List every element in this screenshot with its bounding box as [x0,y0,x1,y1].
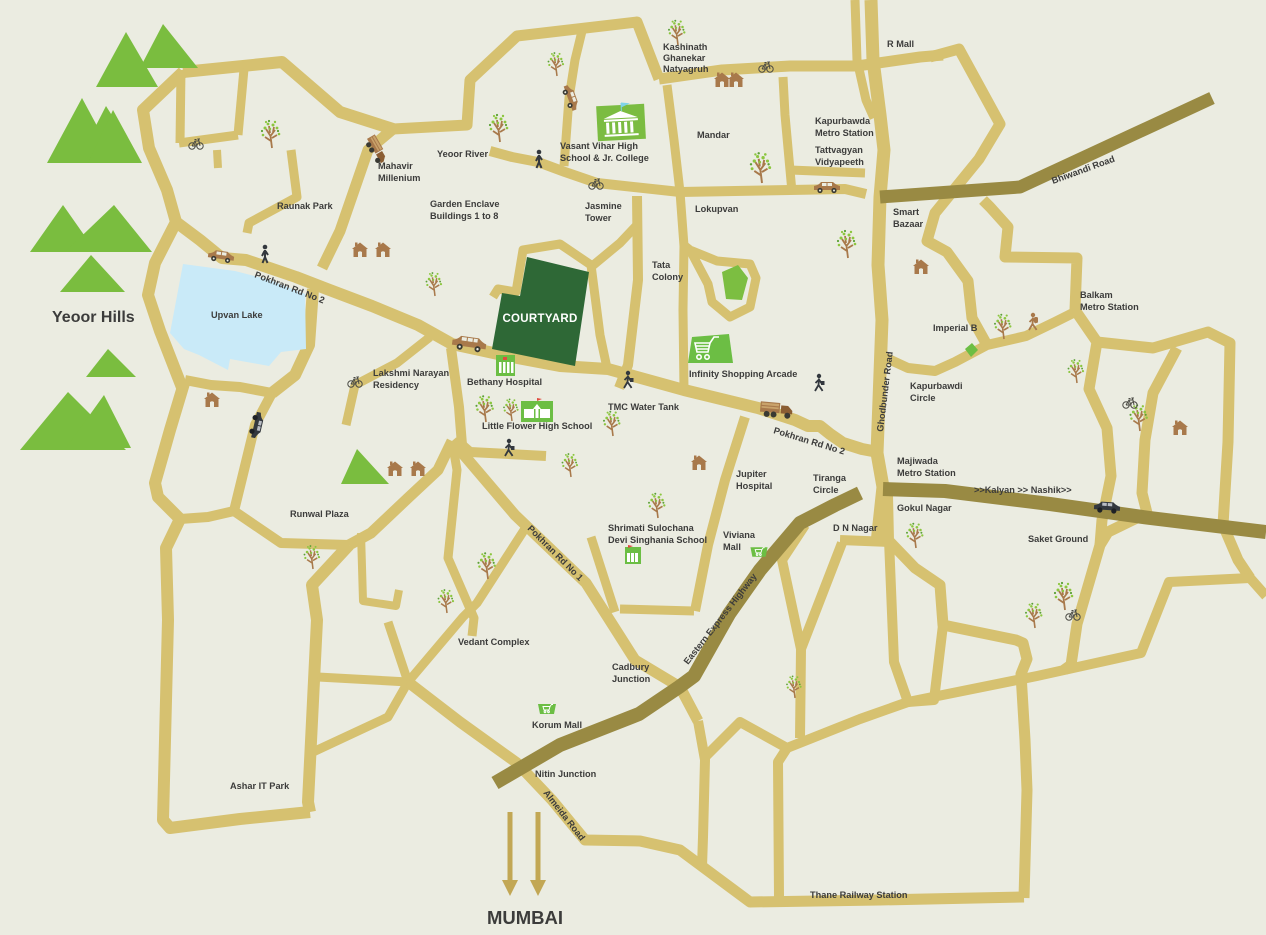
svg-text:Mandar: Mandar [697,130,730,140]
svg-text:School & Jr. College: School & Jr. College [560,153,649,163]
svg-text:Vasant Vihar High: Vasant Vihar High [560,141,638,151]
svg-text:Vidyapeeth: Vidyapeeth [815,157,864,167]
svg-text:Millenium: Millenium [378,173,420,183]
svg-text:Bethany Hospital: Bethany Hospital [467,377,542,387]
svg-text:Circle: Circle [910,393,936,403]
svg-text:Bazaar: Bazaar [893,219,924,229]
svg-text:Upvan Lake: Upvan Lake [211,310,263,320]
svg-text:Garden Enclave: Garden Enclave [430,199,499,209]
svg-text:MUMBAI: MUMBAI [487,907,563,928]
svg-text:Devi Singhania School: Devi Singhania School [608,535,707,545]
svg-text:Jupiter: Jupiter [736,469,767,479]
svg-text:Runwal Plaza: Runwal Plaza [290,509,350,519]
svg-text:Kapurbawda: Kapurbawda [815,116,871,126]
svg-text:>>Kalyan >> Nashik>>: >>Kalyan >> Nashik>> [974,485,1072,495]
svg-text:Cadbury: Cadbury [612,662,650,672]
svg-text:Thane Railway Station: Thane Railway Station [810,890,908,900]
svg-text:Mall: Mall [723,542,741,552]
svg-text:Saket Ground: Saket Ground [1028,534,1088,544]
svg-text:Viviana: Viviana [723,530,756,540]
svg-text:Metro Station: Metro Station [1080,302,1139,312]
svg-text:Circle: Circle [813,485,839,495]
svg-text:Lakshmi Narayan: Lakshmi Narayan [373,368,449,378]
svg-text:Metro Station: Metro Station [815,128,874,138]
svg-text:Mahavir: Mahavir [378,161,413,171]
svg-text:Ghanekar: Ghanekar [663,53,706,63]
svg-text:Nitin Junction: Nitin Junction [535,769,597,779]
svg-text:Jasmine: Jasmine [585,201,622,211]
svg-text:Shrimati Sulochana: Shrimati Sulochana [608,523,695,533]
svg-text:Smart: Smart [893,207,919,217]
svg-text:D N Nagar: D N Nagar [833,523,878,533]
svg-text:Tattvagyan: Tattvagyan [815,145,863,155]
svg-text:Majiwada: Majiwada [897,456,939,466]
svg-text:Raunak Park: Raunak Park [277,201,334,211]
svg-text:Hospital: Hospital [736,481,772,491]
svg-text:Metro Station: Metro Station [897,468,956,478]
svg-text:Korum Mall: Korum Mall [532,720,582,730]
svg-text:Tata: Tata [652,260,671,270]
svg-text:Vedant Complex: Vedant Complex [458,637,530,647]
svg-text:Natyagruh: Natyagruh [663,64,709,74]
svg-text:Colony: Colony [652,272,684,282]
svg-text:Infinity Shopping Arcade: Infinity Shopping Arcade [689,369,797,379]
svg-text:Yeoor River: Yeoor River [437,149,488,159]
svg-text:TMC Water Tank: TMC Water Tank [608,402,680,412]
svg-text:Tower: Tower [585,213,612,223]
svg-text:COURTYARD: COURTYARD [502,313,577,325]
svg-text:Ashar IT Park: Ashar IT Park [230,781,290,791]
svg-text:R Mall: R Mall [887,39,914,49]
svg-text:Lokupvan: Lokupvan [695,204,739,214]
svg-text:Kapurbawdi: Kapurbawdi [910,381,963,391]
svg-text:Little Flower High School: Little Flower High School [482,421,592,431]
svg-text:Buildings 1 to 8: Buildings 1 to 8 [430,211,498,221]
svg-text:Kashinath: Kashinath [663,42,708,52]
svg-text:Gokul Nagar: Gokul Nagar [897,503,952,513]
svg-text:Imperial B: Imperial B [933,323,978,333]
svg-text:Balkam: Balkam [1080,290,1113,300]
svg-text:Tiranga: Tiranga [813,473,847,483]
svg-text:Yeoor Hills: Yeoor Hills [52,309,135,326]
svg-text:Residency: Residency [373,380,420,390]
svg-text:Junction: Junction [612,674,651,684]
